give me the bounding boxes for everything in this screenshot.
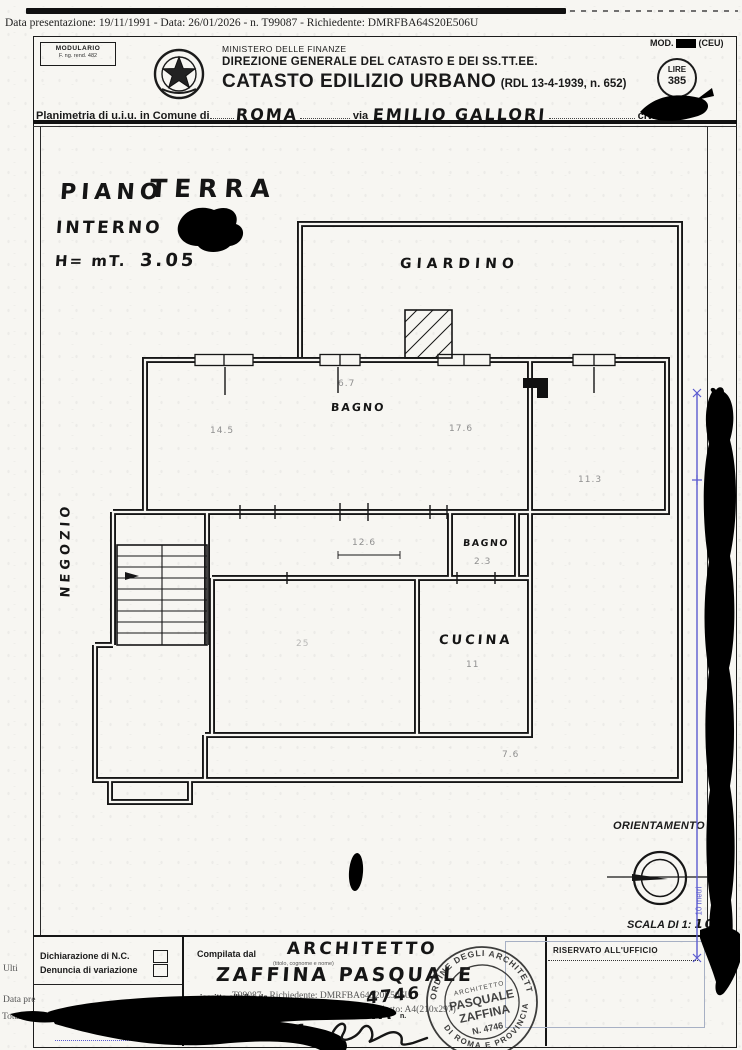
mod-suffix: (CEU) [699,38,724,48]
office-use-dotted-line [548,959,700,961]
modulario-line1: MODULARIO [41,45,115,53]
state-emblem-icon [150,45,208,103]
left-fragment-3: Totale pa [2,1012,37,1022]
mod-redaction [676,39,696,48]
declaration-checkbox[interactable] [153,950,168,963]
signature-label: Firma [279,1029,301,1038]
lire-value: 385 [659,75,695,87]
ministry-line1: MINISTERO DELLE FINANZE [222,44,662,54]
room-label-giardino: GIARDINO [399,256,519,272]
left-fragment-2: Data pre [3,995,35,1005]
comune-value: ROMA [235,105,299,124]
variation-checkbox[interactable] [153,964,168,977]
declaration-row-label: Dichiarazione di N.C. [40,951,130,961]
lire-label: LIRE [659,66,695,75]
plan-frame [40,126,708,937]
footer-top-line [33,935,737,937]
room-label-negozio: NEGOZIO [59,489,74,598]
number-label: n. [400,1013,406,1020]
lire-stamp: LIRE 385 [657,58,697,98]
footer-leftcell-line [33,984,182,985]
location-line: Planimetria di u.i.u. in Comune diROMA v… [36,104,716,123]
scale-value: 10 [694,917,715,931]
measurement-11-3: 11.3 [578,475,602,485]
office-use-header: RISERVATO ALL'UFFICIO [553,946,658,955]
scan-artifact-dashes [570,10,738,12]
scale-bar-label: 10 metri [695,870,704,916]
measurement-25: 25 [296,639,309,649]
interno-label: INTERNO [55,218,163,238]
room-label-bagno-2: BAGNO [463,538,510,549]
compiler-title-handwritten: ARCHITETTO [286,939,438,959]
measurement-6-7: 6.7 [338,379,355,389]
document-title: CATASTO EDILIZIO URBANO [222,71,496,92]
footer-divider-left [182,937,184,1046]
location-prefix: Planimetria di u.i.u. in Comune di [36,110,210,122]
blue-dotted-line [55,1039,240,1041]
civ-label: civ. [638,110,656,122]
meta-line: Data presentazione: 19/11/1991 - Data: 2… [5,17,478,29]
orientation-title: ORIENTAMENTO [613,820,705,832]
via-label: via [353,110,368,122]
floor-value: TERRA [149,174,278,203]
modulario-line2: F. ng. rend. 482 [41,53,115,60]
compiled-by-label: Compilata dal [197,949,256,959]
header-divider-thin [33,126,737,127]
scale-label: SCALA DI 1: [627,919,691,931]
scan-artifact-bar [26,8,566,14]
measurement-2-3: 2.3 [474,557,491,567]
ministry-line2: DIREZIONE GENERALE DEL CATASTO E DEI SS.… [222,56,662,68]
measurement-14-5: 14.5 [210,426,234,436]
measurement-12-6: 12.6 [352,538,376,548]
compiler-name-handwritten: ZAFFINA PASQUALE [215,964,475,986]
left-fragment-1: Ulti [3,964,18,974]
date-label: data [202,1029,218,1038]
ministry-header: MINISTERO DELLE FINANZE DIREZIONE GENERA… [222,44,662,93]
measurement-7-6: 7.6 [502,750,519,760]
document-title-reference: (RDL 13-4-1939, n. 652) [501,78,627,90]
scanned-cadastral-document: Data presentazione: 19/11/1991 - Data: 2… [0,0,742,1050]
scale-note: SCALA DI 1: 10 [627,917,715,931]
via-value: EMILIO GALLORI [372,105,547,124]
room-label-cucina: CUCINA [438,633,512,648]
mod-label: MOD. [650,38,674,48]
measurement-17-6: 17.6 [449,424,473,434]
room-label-bagno-1: BAGNO [331,401,386,414]
measurement-11: 11 [466,660,479,670]
height-label: H= mT. [54,252,127,270]
province-label: della provincia di [202,1012,267,1021]
height-value: 3.05 [139,250,197,271]
mod-line: MOD. (CEU) [650,38,724,48]
modulario-box: MODULARIO F. ng. rend. 482 [40,42,116,66]
variation-row-label: Denuncia di variazione [40,965,138,975]
